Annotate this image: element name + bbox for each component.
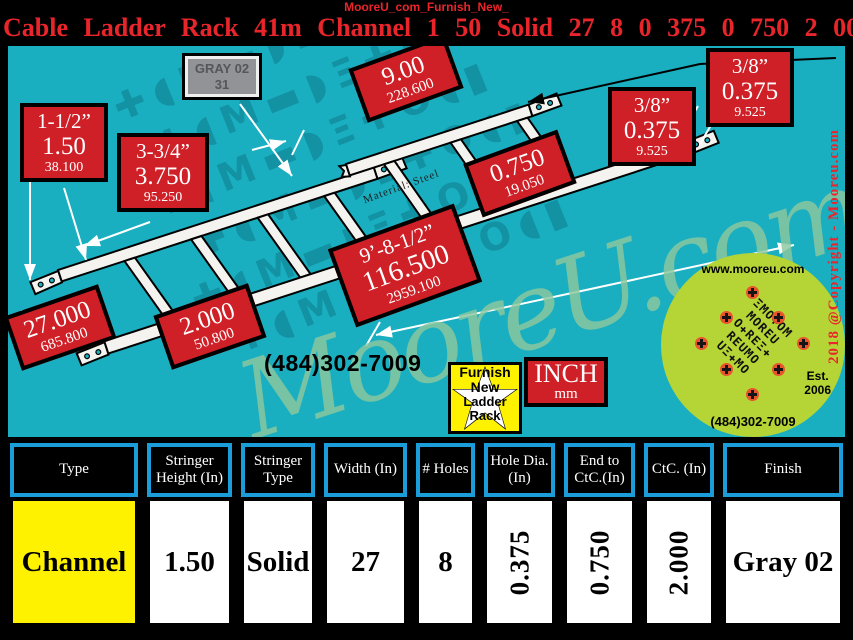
- plus-circle-icon: [746, 388, 759, 401]
- logo-phone: (484)302-7009: [661, 414, 845, 429]
- col-header-end-to-ctc: End to CtC.(In): [564, 443, 635, 497]
- top-watermark-text: MooreU_com_Furnish_New_: [0, 0, 853, 14]
- col-header-ctc: CtC. (In): [644, 443, 714, 497]
- spec-table-header-row: Type Stringer Height (In) Stringer Type …: [10, 443, 843, 497]
- furnish-new-badge: Furnish New Ladder Rack: [448, 362, 522, 434]
- cell-stringer-height: 1.50: [150, 501, 229, 623]
- dimension-label-hole-dia-right: 3/8” 0.375 9.525: [706, 48, 794, 127]
- col-header-stringer-height: Stringer Height (In): [147, 443, 232, 497]
- col-header-finish: Finish: [723, 443, 843, 497]
- cell-finish: Gray 02: [726, 501, 840, 623]
- listing-title: Cable Ladder Rack 41m Channel 1 50 Solid…: [3, 13, 853, 43]
- mooreu-logo: www.mooreu.com ΞMO✚OM MOREU O✚REΞ✚ REUMO…: [661, 253, 845, 437]
- plus-circle-icon: [746, 286, 759, 299]
- col-header-width: Width (In): [324, 443, 407, 497]
- plus-circle-icon: [720, 311, 733, 324]
- logo-established: Est. 2006: [804, 369, 831, 397]
- units-box: INCH mm: [524, 357, 608, 407]
- cell-ctc: 2.000: [647, 501, 711, 623]
- cell-end-to-ctc: 0.750: [567, 501, 632, 623]
- dimension-label-3-3-4: 3-3/4” 3.750 95.250: [117, 133, 209, 212]
- cell-holes: 8: [419, 501, 472, 623]
- plus-circle-icon: [772, 363, 785, 376]
- finish-color-tag: GRAY 02 31: [182, 53, 262, 100]
- dimension-label-stringer-height: 1-1/2” 1.50 38.100: [20, 103, 108, 182]
- copyright-text: 2018 @Copyright - Mooreu.com: [826, 54, 843, 364]
- plus-circle-icon: [797, 337, 810, 350]
- plus-circle-icon: [720, 363, 733, 376]
- spec-table: Type Stringer Height (In) Stringer Type …: [0, 437, 853, 640]
- col-header-hole-dia: Hole Dia. (In): [484, 443, 555, 497]
- col-header-type: Type: [10, 443, 138, 497]
- dimension-label-hole-dia-left: 3/8” 0.375 9.525: [608, 87, 696, 166]
- cell-type: Channel: [13, 501, 135, 623]
- cell-hole-dia: 0.375: [487, 501, 552, 623]
- plus-circle-icon: [695, 337, 708, 350]
- cell-stringer-type: Solid: [244, 501, 312, 623]
- spec-table-data-row: Channel 1.50 Solid 27 8 0.375 0.750 2.00…: [10, 501, 843, 623]
- col-header-stringer-type: Stringer Type: [241, 443, 315, 497]
- plus-circle-icon: [772, 311, 785, 324]
- cell-width: 27: [327, 501, 404, 623]
- phone-number: (484)302-7009: [264, 350, 421, 377]
- technical-drawing-area: ✚◖M▬◗Ξ✚O◖▮ ✚◖M▬◗Ξ✚O◖▮ ✚◖M▬◗Ξ✚O◖▮ ✚◖M▬◗Ξ✚…: [8, 46, 845, 437]
- col-header-holes: # Holes: [416, 443, 475, 497]
